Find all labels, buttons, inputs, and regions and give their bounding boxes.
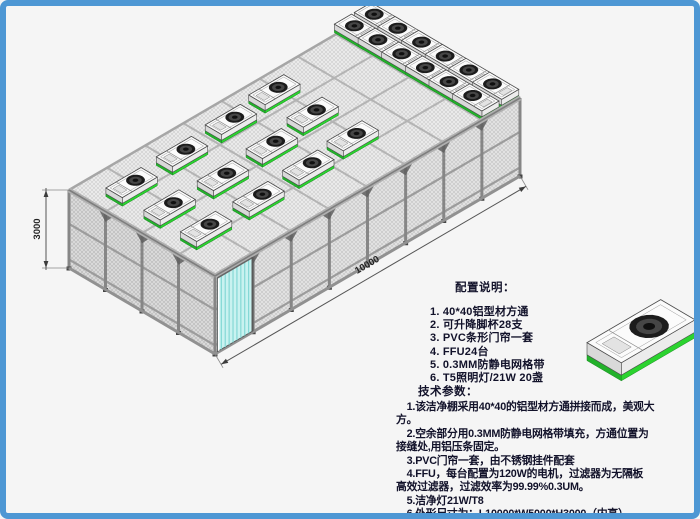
tech-param-line: 接缝处,用铝压条固定。 [396, 441, 694, 454]
config-item: 1. 40*40铝型材方通 [430, 306, 615, 319]
config-notes: 配置说明： 1. 40*40铝型材方通2. 可升降脚杯28支3. PVC条形门帘… [430, 279, 615, 385]
tech-param-line: 3.PVC门帘一套，由不锈钢挂件配套 [396, 455, 694, 468]
config-item: 5. 0.3MM防静电网格带 [430, 359, 615, 372]
config-item: 3. PVC条形门帘一套 [430, 332, 615, 345]
tech-param-line: 4.FFU，每台配置为120W的电机，过滤器为无隔板 [396, 468, 694, 481]
height-dimension-label: 3000 [32, 218, 43, 239]
tech-params: 技术参数： 1.该洁净棚采用40*40的铝型材方通拼接而成，美观大方。 2.空余… [396, 383, 694, 519]
tech-param-line: 方。 [396, 414, 694, 427]
tech-params-title: 技术参数： [418, 383, 694, 399]
page-frame: 300010000 配置说明： 1. 40*40铝型材方通2. 可升降脚杯28支… [0, 0, 700, 519]
tech-param-line: 1.该洁净棚采用40*40的铝型材方通拼接而成，美观大 [396, 401, 694, 414]
tech-params-list: 1.该洁净棚采用40*40的铝型材方通拼接而成，美观大方。 2.空余部分用0.3… [396, 401, 694, 519]
config-notes-list: 1. 40*40铝型材方通2. 可升降脚杯28支3. PVC条形门帘一套4. F… [430, 306, 615, 385]
tech-param-line: 高效过滤器，过滤效率为99.99%0.3UM。 [396, 481, 694, 494]
tech-param-line: 5.洁净灯21W/T8 [396, 495, 694, 508]
tech-param-line: 2.空余部分用0.3MM防静电网格带填充，方通位置为 [396, 428, 694, 441]
config-item: 2. 可升降脚杯28支 [430, 319, 615, 332]
tech-param-line: 6.外形尺寸为：L10000*W5000*H3000（内高） [396, 508, 694, 519]
config-notes-title: 配置说明： [455, 279, 615, 295]
config-item: 4. FFU24台 [430, 346, 615, 359]
